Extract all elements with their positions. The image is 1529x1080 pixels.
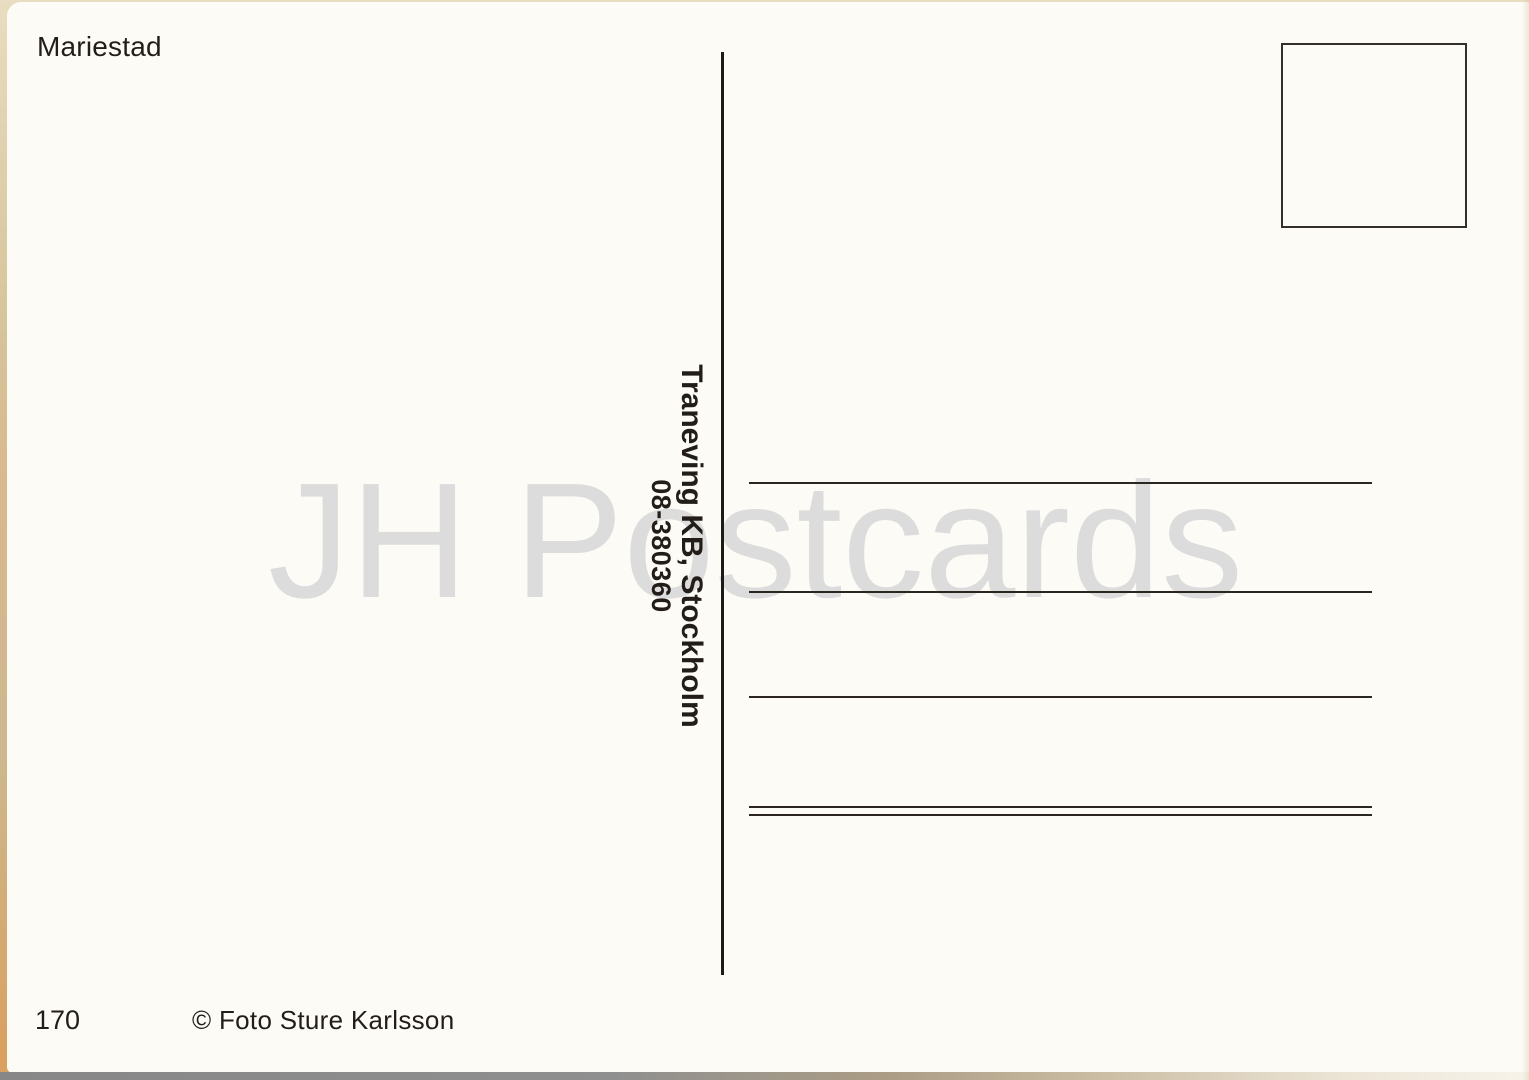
address-line-double-bottom — [749, 814, 1372, 816]
photo-copyright: © Foto Sture Karlsson — [192, 1005, 454, 1036]
center-divider-line — [721, 52, 724, 975]
scanned-postcard-back: JH Postcards Mariestad Traneving KB, Sto… — [0, 0, 1529, 1080]
postcard-card: JH Postcards Mariestad Traneving KB, Sto… — [7, 2, 1529, 1073]
publisher-credit: Traneving KB, Stockholm 08-380360 — [646, 364, 708, 727]
address-line-double-top — [749, 806, 1372, 808]
stamp-box — [1281, 43, 1467, 228]
printed-layer: Mariestad Traneving KB, Stockholm 08-380… — [7, 2, 1529, 1073]
card-number: 170 — [35, 1005, 80, 1036]
publisher-name: Traneving KB, Stockholm — [675, 364, 708, 727]
location-title: Mariestad — [37, 30, 162, 64]
scan-edge-strip — [0, 1072, 1529, 1080]
address-line — [749, 482, 1372, 484]
address-line — [749, 591, 1372, 593]
address-line — [749, 696, 1372, 698]
scan-edge-right — [1522, 0, 1529, 1080]
publisher-phone: 08-380360 — [646, 364, 675, 727]
